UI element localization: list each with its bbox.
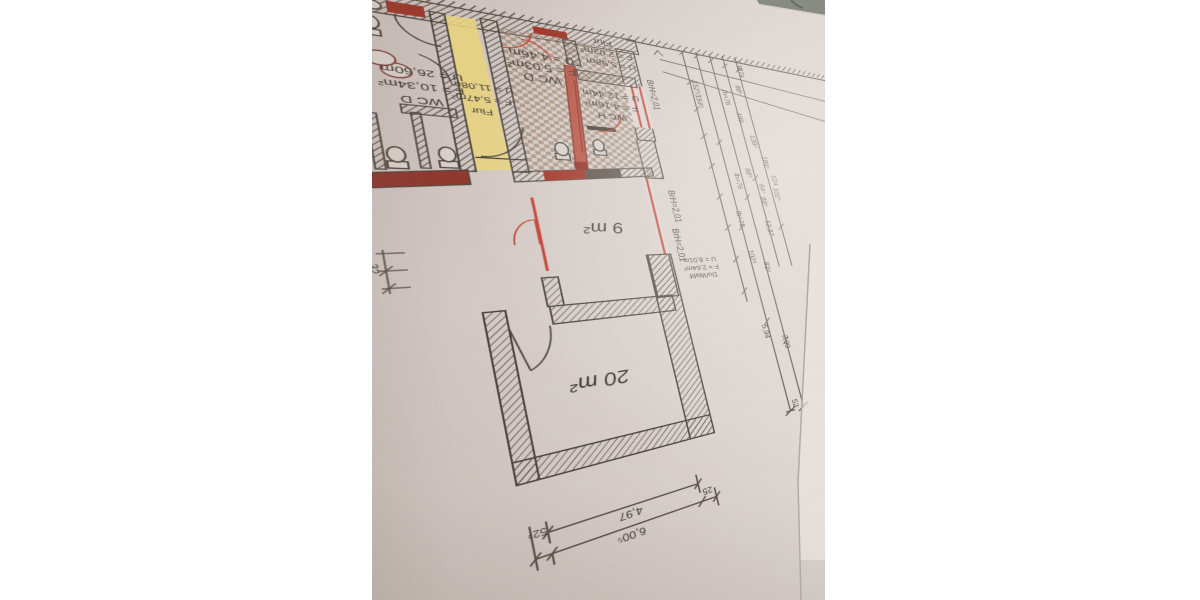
- svg-text:BrH=2,01: BrH=2,01: [666, 190, 685, 223]
- svg-text:Du/WaM: Du/WaM: [689, 270, 718, 279]
- svg-text:lh=76: lh=76: [734, 211, 747, 227]
- svg-text:1,13: 1,13: [733, 59, 744, 72]
- svg-text:lh=76: lh=76: [732, 173, 745, 189]
- svg-text:3,99: 3,99: [780, 334, 792, 349]
- svg-text:32: 32: [372, 264, 382, 275]
- svg-text:124: 124: [769, 175, 780, 186]
- svg-text:52: 52: [790, 398, 800, 408]
- svg-text:6,00⁵: 6,00⁵: [616, 524, 647, 546]
- svg-text:88⁵: 88⁵: [759, 197, 770, 207]
- svg-text:25: 25: [701, 484, 713, 496]
- svg-text:102⁵: 102⁵: [746, 250, 758, 264]
- svg-text:9 m²: 9 m²: [580, 219, 625, 236]
- svg-text:82⁴: 82⁴: [762, 262, 773, 273]
- svg-text:12,37: 12,37: [763, 220, 775, 236]
- svg-text:20 m²: 20 m²: [567, 365, 633, 396]
- svg-text:5,94: 5,94: [760, 324, 772, 340]
- svg-text:189⁵: 189⁵: [760, 156, 771, 169]
- svg-text:139⁴: 139⁴: [748, 135, 759, 148]
- svg-text:189: 189: [735, 112, 746, 123]
- svg-text:4,97: 4,97: [617, 504, 643, 524]
